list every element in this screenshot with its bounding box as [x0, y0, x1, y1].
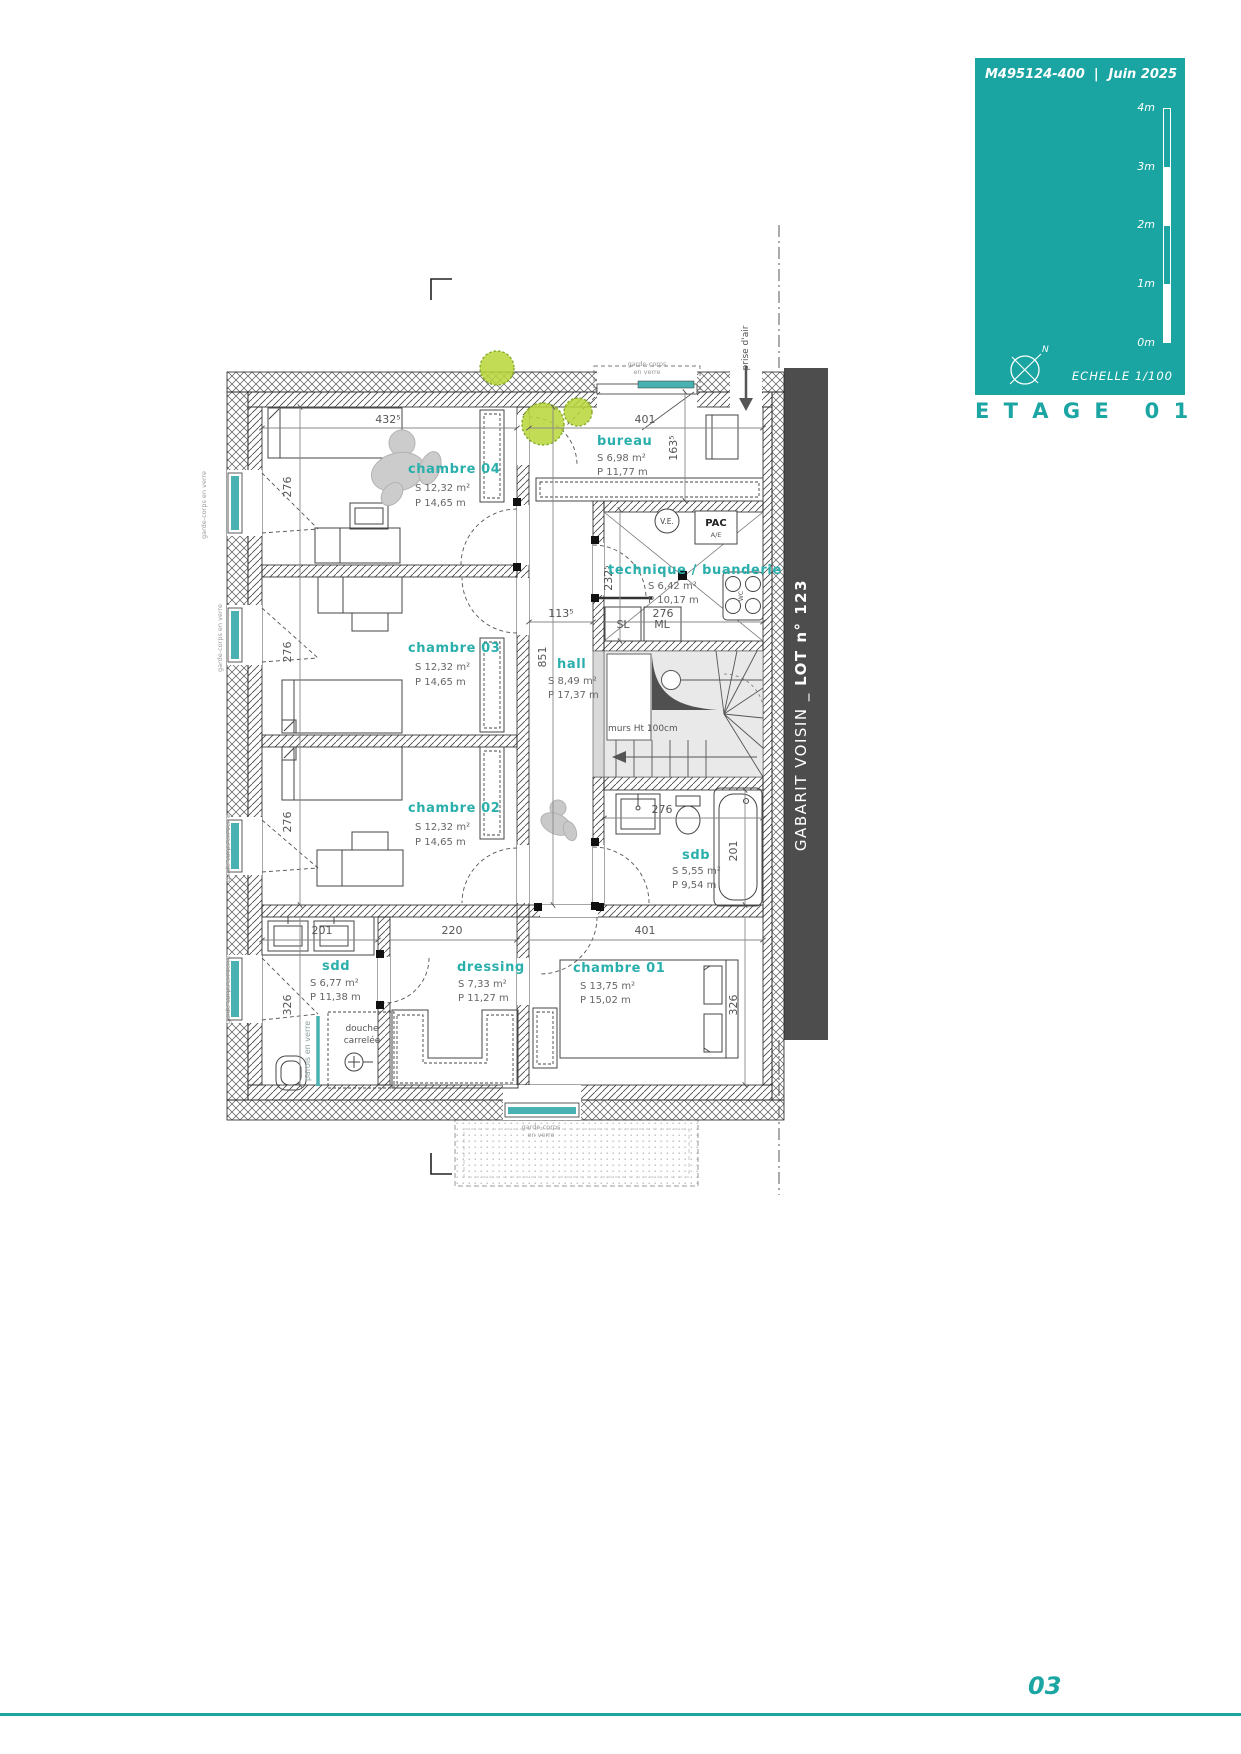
scale-text: ECHELLE 1/100 [1072, 369, 1173, 383]
gabarit-voisin-label: GABARIT VOISIN _ LOT n° 123 [792, 579, 811, 851]
dim-hall-height: 851 [536, 647, 549, 668]
title-block: M495124-400 | Juin 2025 4m 3m 2m 1m 0m N… [975, 58, 1185, 395]
room-ch03-name: chambre 03 [408, 641, 500, 656]
room-dressing-area: S 7,33 m² [458, 979, 507, 990]
room-dressing-name: dressing [457, 960, 525, 975]
room-hall-perimeter: P 17,37 m [548, 690, 599, 701]
dim-sdd-width: 201 [312, 924, 333, 937]
note-gardecorps-left-4: garde-corps en verre [224, 956, 232, 1024]
room-sdd-name: sdd [322, 959, 350, 974]
ve-label: V.E. [660, 517, 674, 526]
room-ch03-area: S 12,32 m² [415, 662, 470, 673]
desk-ch03 [318, 577, 402, 631]
note-gardecorps-top-1: garde-corps [628, 360, 667, 368]
page-number: 03 [1028, 1672, 1061, 1700]
room-bureau-area: S 6,98 m² [597, 453, 646, 464]
window-sdd [228, 958, 318, 1020]
note-gardecorps-left-3: garde-corps en verre [224, 814, 232, 882]
ml-label: ML [654, 618, 670, 631]
dim-ch03-height: 276 [281, 642, 294, 663]
person-hall [537, 800, 579, 842]
room-sdd-area: S 6,77 m² [310, 978, 359, 989]
note-douche-2: carrelée [344, 1035, 381, 1046]
north-compass-icon: N [997, 340, 1055, 392]
date-label: Juin 2025 [1108, 67, 1177, 82]
room-ch04-area: S 12,32 m² [415, 483, 470, 494]
gabarit-voisin-band: GABARIT VOISIN _ LOT n° 123 [784, 368, 828, 1040]
stair-wall-note: murs Ht 100cm [608, 724, 678, 734]
room-ch01-area: S 13,75 m² [580, 981, 635, 992]
room-ch03-perimeter: P 14,65 m [415, 677, 466, 688]
room-bureau-name: bureau [597, 434, 652, 449]
window-ch01 [505, 1103, 579, 1117]
terrace [455, 1120, 698, 1186]
room-hall-name: hall [557, 657, 586, 672]
scale-0m: 0m [1115, 336, 1155, 349]
dim-sdb-width: 276 [652, 803, 673, 816]
note-gardecorps-left-1: garde-corps en verre [200, 471, 208, 539]
desk-bureau [706, 415, 738, 459]
dim-bureau-width: 401 [635, 413, 656, 426]
stairs: murs Ht 100cm [593, 651, 764, 777]
pac-sub-label: A/E [711, 531, 722, 539]
north-label: N [1042, 345, 1049, 355]
room-sdb-area: S 5,55 m² [672, 866, 721, 877]
wardrobe-ch04 [480, 410, 504, 502]
room-tech-name: technique / buanderie [608, 563, 782, 578]
toilet-sdb [676, 796, 700, 834]
floor-plan-page: GABARIT VOISIN _ LOT n° 123 [0, 0, 1241, 1754]
room-sdb-name: sdb [682, 848, 710, 863]
note-gardecorps-bottom-2: en verre [527, 1131, 554, 1139]
room-tech-perimeter: P 10,17 m [648, 595, 699, 606]
room-ch04-perimeter: P 14,65 m [415, 498, 466, 509]
window-ch02 [228, 820, 318, 872]
wardrobe-ch02 [480, 747, 504, 839]
dim-ch04-width: 432⁵ [375, 413, 400, 426]
room-ch02-perimeter: P 14,65 m [415, 837, 466, 848]
room-dressing-perimeter: P 11,27 m [458, 993, 509, 1004]
dim-ch01-width: 401 [635, 924, 656, 937]
room-ch01-perimeter: P 15,02 m [580, 995, 631, 1006]
wardrobe-ch01 [533, 1008, 557, 1068]
note-douche-1: douche [345, 1024, 379, 1034]
wc-label: WC [738, 591, 745, 601]
room-hall-area: S 8,49 m² [548, 676, 597, 687]
note-gardecorps-bottom-1: garde-corps [522, 1123, 561, 1131]
footer-rule [0, 1713, 1241, 1716]
scale-1m: 1m [1115, 277, 1155, 290]
floor-title: E T A G E 0 1 [975, 399, 1186, 423]
dim-ch02-height: 276 [281, 812, 294, 833]
note-gardecorps-top-2: en verre [633, 368, 660, 376]
wardrobe-dressing [392, 1010, 518, 1088]
dim-sdd-height: 326 [281, 995, 294, 1016]
scale-bar [1163, 108, 1171, 343]
dim-ch04-height: 276 [281, 477, 294, 498]
room-bureau-perimeter: P 11,77 m [597, 467, 648, 478]
desk-ch04 [315, 503, 400, 563]
note-parois: parois en verre [303, 1021, 312, 1081]
scale-4m: 4m [1115, 101, 1155, 114]
window-ch03 [228, 608, 318, 662]
room-sdb-perimeter: P 9,54 m [672, 880, 716, 891]
frame-corner-marks [431, 279, 452, 1174]
project-reference: M495124-400 | [985, 67, 1099, 82]
dim-bureau-height: 163⁵ [667, 435, 680, 460]
pac-label: PAC [705, 518, 727, 529]
room-ch01-name: chambre 01 [573, 961, 665, 976]
dim-dressing-width: 220 [442, 924, 463, 937]
room-tech-area: S 6,42 m² [648, 581, 697, 592]
note-gardecorps-left-2: garde-corps en verre [216, 604, 224, 672]
room-ch02-name: chambre 02 [408, 801, 500, 816]
scale-2m: 2m [1115, 218, 1155, 231]
room-ch02-area: S 12,32 m² [415, 822, 470, 833]
closet-bureau [536, 478, 763, 501]
note-prise-air: prise d'air [741, 325, 751, 370]
room-ch04-name: chambre 04 [408, 462, 500, 477]
dim-hall-width: 113⁵ [548, 607, 573, 620]
scale-3m: 3m [1115, 160, 1155, 173]
dim-ch01-height: 326 [727, 995, 740, 1016]
desk-ch02 [317, 832, 403, 886]
dim-bathtub-height: 201 [727, 841, 740, 862]
sl-label: SL [616, 618, 630, 631]
room-sdd-perimeter: P 11,38 m [310, 992, 361, 1003]
window-ch04 [228, 473, 318, 533]
